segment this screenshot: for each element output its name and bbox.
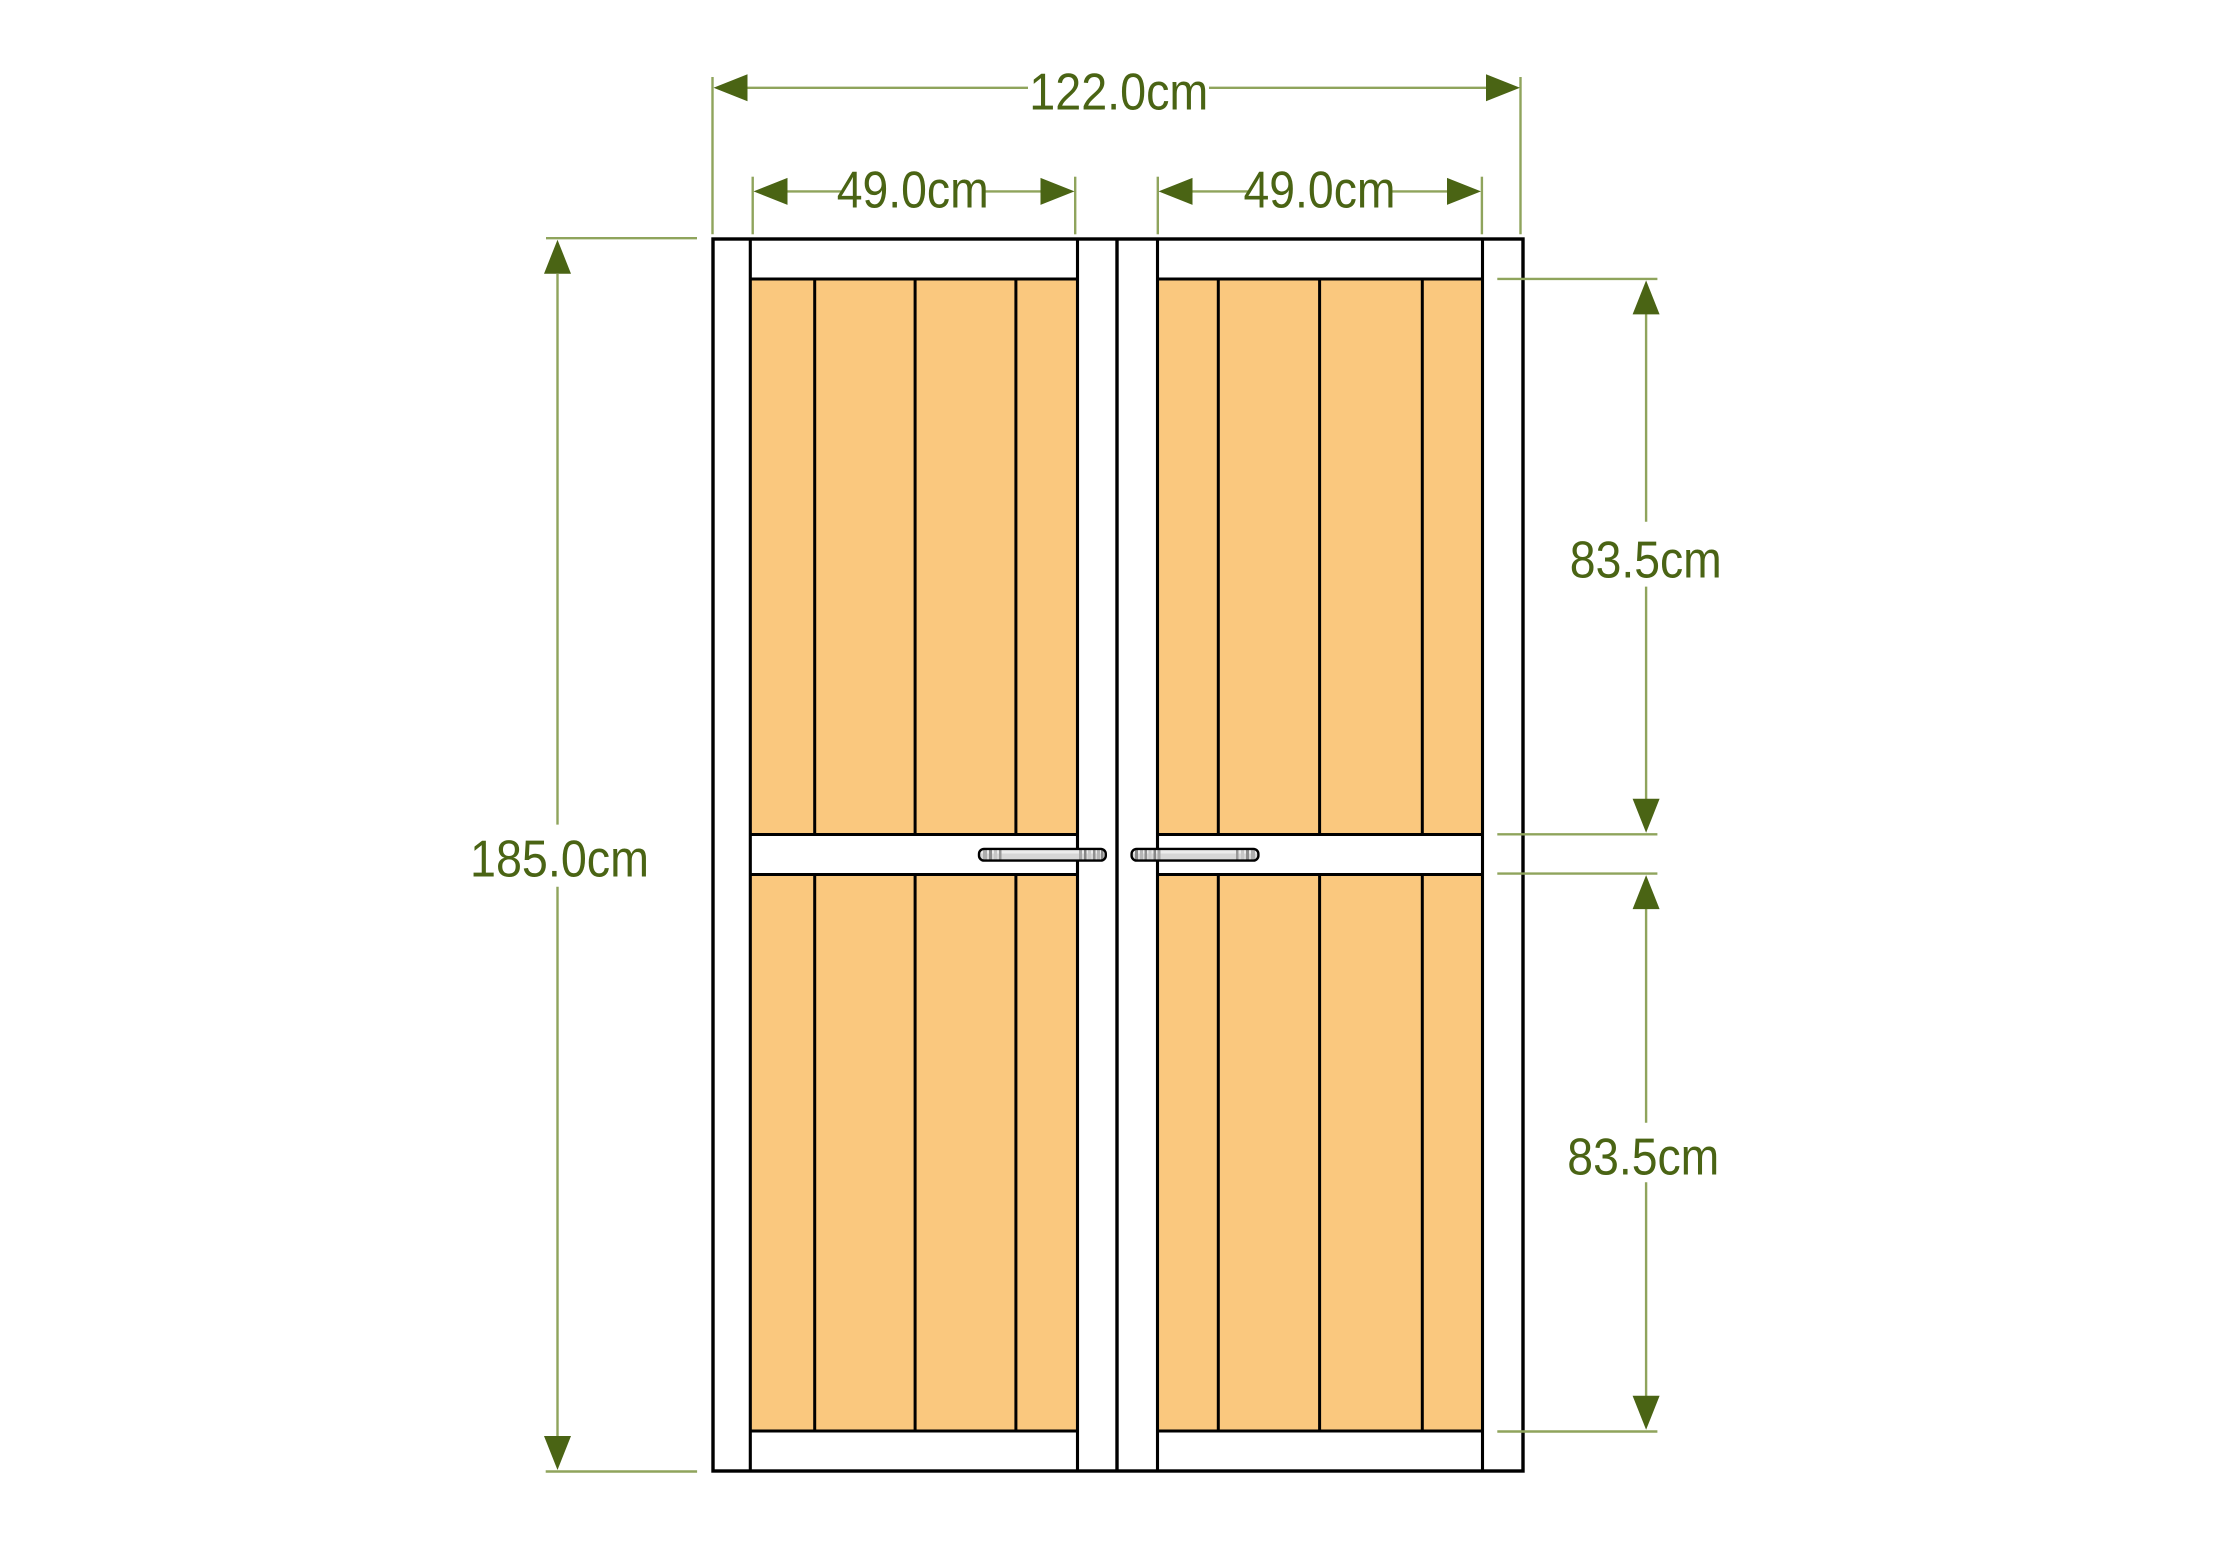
- svg-text:122.0cm: 122.0cm: [1029, 64, 1208, 122]
- svg-text:185.0cm: 185.0cm: [470, 831, 649, 889]
- svg-text:49.0cm: 49.0cm: [837, 162, 989, 220]
- svg-text:83.5cm: 83.5cm: [1567, 1129, 1719, 1187]
- svg-text:49.0cm: 49.0cm: [1244, 162, 1396, 220]
- svg-text:83.5cm: 83.5cm: [1570, 532, 1722, 590]
